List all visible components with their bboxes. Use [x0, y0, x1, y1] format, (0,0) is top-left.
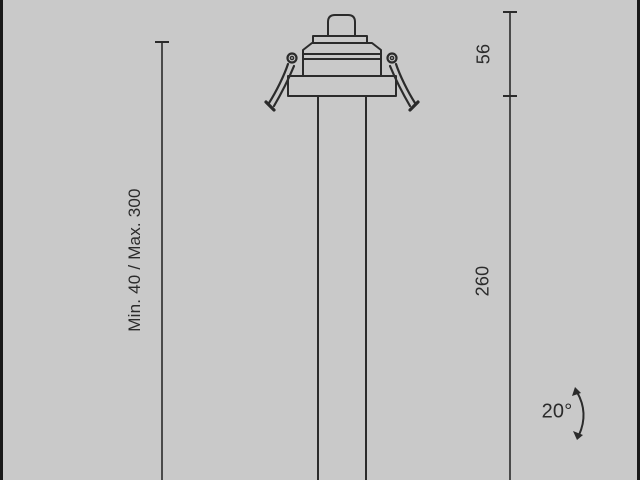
dimension-line-recess-depth: [155, 42, 169, 480]
mounting-clip-right: [388, 54, 419, 111]
dimension-line-right: [503, 12, 517, 480]
fixture-bell: [303, 43, 381, 54]
head-height-label: 56: [474, 44, 495, 64]
clip-pivot-icon: [388, 54, 397, 63]
fixture-trim-ring: [288, 76, 396, 96]
clip-pivot-icon: [288, 54, 297, 63]
stem-tube: [318, 96, 366, 480]
fixture-neck: [313, 36, 367, 43]
mounting-clip-left: [266, 54, 297, 111]
arc-arrowhead-bottom: [573, 431, 583, 440]
clip-pivot-pin-icon: [290, 56, 293, 59]
clip-pivot-pin-icon: [390, 56, 393, 59]
fixture-head: [288, 15, 396, 96]
fixture-body: [303, 54, 381, 76]
tilt-arc-arrow-icon: [572, 387, 584, 440]
recess-depth-label: Min. 40 / Max. 300: [125, 188, 145, 331]
stem-length-label: 260: [473, 266, 494, 297]
diagram-canvas: Min. 40 / Max. 300 56 260 20°: [0, 0, 640, 480]
tilt-angle-label: 20°: [542, 401, 573, 424]
arc-arrowhead-top: [572, 387, 581, 396]
fixture-cap: [328, 15, 355, 36]
